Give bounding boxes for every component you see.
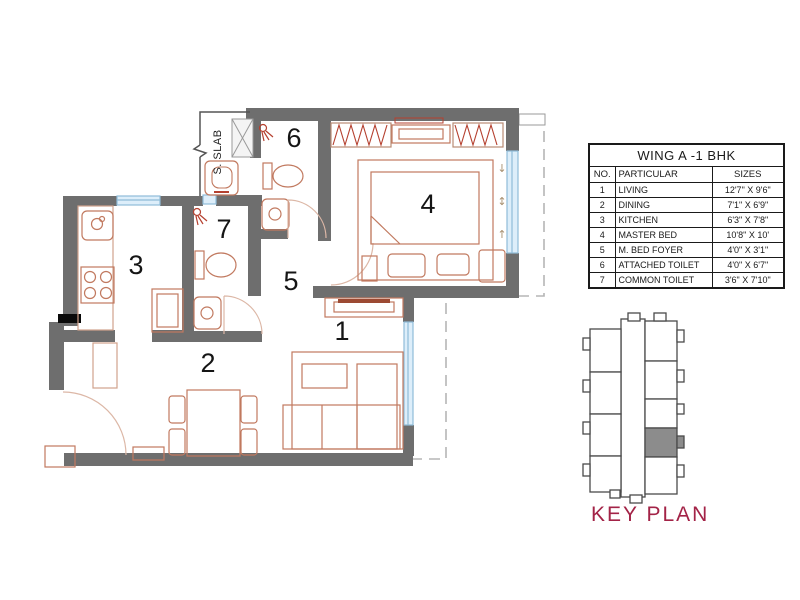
cell-no: 5 xyxy=(589,243,615,258)
sofa-seat xyxy=(283,405,400,449)
key-plan-highlighted-unit xyxy=(645,428,677,457)
bedside-table xyxy=(479,250,505,282)
room-number-dining: 2 xyxy=(200,348,215,378)
room-number-foyer: 5 xyxy=(283,266,298,296)
wc-attached-toilet xyxy=(273,165,303,187)
kitchen-fittings xyxy=(78,206,183,388)
arrow-down-icon: ↓ xyxy=(497,162,506,175)
bed-bench xyxy=(388,254,425,277)
cell-sizes: 12'7" X 9'6" xyxy=(712,183,784,198)
cell-particular: M. BED FOYER xyxy=(615,243,712,258)
kitchen-sink xyxy=(82,211,113,240)
cell-sizes: 4'0" X 6'7" xyxy=(712,258,784,273)
dining-chair-4 xyxy=(241,429,257,455)
key-plan-unit xyxy=(645,321,677,361)
wardrobe-hatch xyxy=(333,125,387,145)
kitchen-platform xyxy=(93,343,117,388)
cell-particular: LIVING xyxy=(615,183,712,198)
col-header-particular: PARTICULAR xyxy=(615,167,712,183)
cell-sizes: 3'6" X 7'10" xyxy=(712,273,784,289)
vent-window-toilet xyxy=(203,195,216,204)
cell-particular: ATTACHED TOILET xyxy=(615,258,712,273)
col-header-no: NO. xyxy=(589,167,615,183)
wardrobe-hatch-2 xyxy=(455,125,497,145)
wc-cistern-2 xyxy=(195,251,204,279)
arrow-updown-icon: ↕ xyxy=(497,195,506,208)
tv-screen xyxy=(338,299,390,303)
room-number-living: 1 xyxy=(334,316,349,346)
key-plan-spine xyxy=(621,319,645,497)
table-row: 2 DINING 7'1" X 6'9" xyxy=(589,198,784,213)
table-row: 1 LIVING 12'7" X 9'6" xyxy=(589,183,784,198)
key-plan-unit xyxy=(645,457,677,494)
room-number-kitchen: 3 xyxy=(128,250,143,280)
table-row: 6 ATTACHED TOILET 4'0" X 6'7" xyxy=(589,258,784,273)
dining-chair-2 xyxy=(169,429,185,455)
key-plan xyxy=(583,313,684,503)
parapet-ledge xyxy=(519,114,545,125)
wc-common-toilet xyxy=(206,253,236,277)
table-title: WING A -1 BHK xyxy=(589,144,784,167)
table-row: 4 MASTER BED 10'8" X 10' xyxy=(589,228,784,243)
bed-bench-2 xyxy=(437,254,469,275)
floor-plan-sheet: 1 2 3 4 5 6 7 S. SLAB ↓ ↕ ↑ xyxy=(0,0,800,600)
key-plan-unit xyxy=(590,414,621,456)
table-row: 5 M. BED FOYER 4'0" X 3'1" xyxy=(589,243,784,258)
break-line-icon xyxy=(194,145,206,157)
sofa-chaise xyxy=(357,364,397,449)
table-row: 7 COMMON TOILET 3'6" X 7'10" xyxy=(589,273,784,289)
dining-table xyxy=(187,390,240,456)
key-plan-unit xyxy=(590,456,621,492)
cell-no: 6 xyxy=(589,258,615,273)
cell-no: 3 xyxy=(589,213,615,228)
table-header-row: NO. PARTICULAR SIZES xyxy=(589,167,784,183)
arrow-up-icon: ↑ xyxy=(497,228,506,241)
cell-particular: MASTER BED xyxy=(615,228,712,243)
door-arc-master-bed xyxy=(331,243,373,285)
key-plan-caption: KEY PLAN xyxy=(591,503,709,527)
key-plan-unit xyxy=(590,372,621,414)
key-plan-unit xyxy=(645,399,677,428)
cell-no: 7 xyxy=(589,273,615,289)
cell-particular: COMMON TOILET xyxy=(615,273,712,289)
sink-bowl xyxy=(92,219,103,230)
key-plan-unit xyxy=(645,361,677,399)
room-number-common-toilet: 7 xyxy=(216,214,231,244)
col-header-sizes: SIZES xyxy=(712,167,784,183)
room-schedule-table: WING A -1 BHK NO. PARTICULAR SIZES 1 LIV… xyxy=(588,143,785,289)
room-number-attached-toilet: 6 xyxy=(286,123,301,153)
dining-chair-3 xyxy=(241,396,257,423)
cell-sizes: 7'1" X 6'9" xyxy=(712,198,784,213)
washbasin-common-toilet xyxy=(194,297,221,329)
key-plan-unit xyxy=(590,329,621,372)
dresser xyxy=(392,125,450,143)
sofa-back-cushion xyxy=(302,364,347,388)
table-row: 3 KITCHEN 6'3" X 7'8" xyxy=(589,213,784,228)
cell-sizes: 10'8" X 10' xyxy=(712,228,784,243)
room-number-master-bed: 4 xyxy=(420,189,435,219)
door-arc-common-toilet xyxy=(224,296,262,334)
cell-no: 4 xyxy=(589,228,615,243)
cell-particular: DINING xyxy=(615,198,712,213)
cell-no: 1 xyxy=(589,183,615,198)
master-bedroom-furniture xyxy=(331,118,505,282)
kitchen-counter xyxy=(78,206,113,330)
window-arrows: ↓ ↕ ↑ xyxy=(497,162,506,241)
shower-head-icon xyxy=(260,125,274,142)
shower-head-icon-2 xyxy=(194,209,208,226)
cell-no: 2 xyxy=(589,198,615,213)
wc-cistern xyxy=(263,163,272,189)
washbasin-attached-toilet xyxy=(262,199,289,230)
cell-particular: KITCHEN xyxy=(615,213,712,228)
cell-sizes: 4'0" X 3'1" xyxy=(712,243,784,258)
cell-sizes: 6'3" X 7'8" xyxy=(712,213,784,228)
dining-chair xyxy=(169,396,185,423)
slab-label: S. SLAB xyxy=(212,129,224,174)
blanket-fold xyxy=(371,216,400,244)
